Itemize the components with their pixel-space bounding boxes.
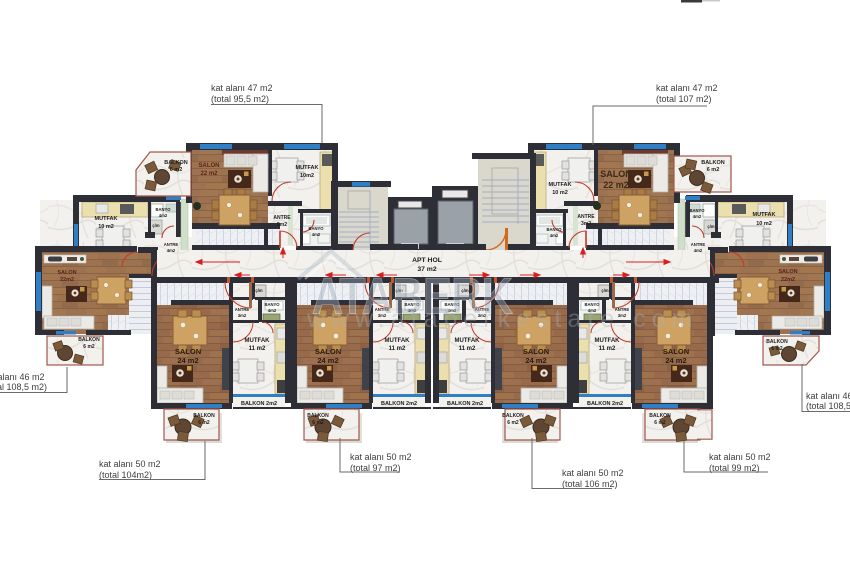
- svg-text:11 m2: 11 m2: [389, 346, 406, 352]
- svg-text:SALON: SALON: [523, 347, 549, 356]
- svg-text:kat alanı 50 m2: kat alanı 50 m2: [350, 452, 412, 462]
- svg-text:MUTFAK: MUTFAK: [296, 165, 319, 171]
- svg-text:(total 104m2): (total 104m2): [99, 470, 152, 480]
- svg-text:ANTRE: ANTRE: [691, 242, 706, 247]
- svg-text:BALKON 2m2: BALKON 2m2: [447, 401, 483, 407]
- svg-text:6 m2: 6 m2: [83, 344, 95, 350]
- svg-text:6 m2: 6 m2: [507, 420, 519, 426]
- svg-text:22m2: 22m2: [60, 277, 74, 283]
- svg-text:6 m2: 6 m2: [198, 420, 210, 426]
- svg-text:10 m2: 10 m2: [756, 221, 772, 227]
- svg-text:3m2: 3m2: [238, 313, 247, 318]
- svg-text:MUTFAK: MUTFAK: [385, 338, 411, 344]
- svg-text:4m2: 4m2: [268, 308, 277, 313]
- svg-text:10m2: 10m2: [300, 173, 314, 179]
- svg-text:4m2: 4m2: [694, 248, 703, 253]
- svg-text:MUTFAK: MUTFAK: [95, 216, 118, 222]
- svg-text:11 m2: 11 m2: [459, 346, 476, 352]
- svg-text:22m2: 22m2: [781, 277, 795, 283]
- svg-text:MUTFAK: MUTFAK: [595, 338, 621, 344]
- svg-text:4m2: 4m2: [312, 232, 321, 237]
- svg-text:kat alanı 46m2: kat alanı 46m2: [806, 391, 850, 401]
- svg-text:www.ataberkestate.com: www.ataberkestate.com: [306, 305, 698, 333]
- svg-text:6 m2: 6 m2: [654, 420, 666, 426]
- svg-text:ç/m: ç/m: [601, 288, 608, 293]
- svg-text:ANTRE: ANTRE: [164, 242, 179, 247]
- svg-text:SALON: SALON: [778, 269, 797, 275]
- svg-text:SALON: SALON: [600, 169, 632, 179]
- svg-text:4m2: 4m2: [693, 214, 702, 219]
- svg-text:(total 106 m2): (total 106 m2): [562, 479, 618, 489]
- svg-text:MUTFAK: MUTFAK: [245, 338, 271, 344]
- svg-text:ANTRE: ANTRE: [577, 214, 595, 220]
- svg-text:BALKON: BALKON: [502, 413, 524, 419]
- svg-text:ç/m: ç/m: [707, 224, 714, 229]
- svg-text:kat alanı 47 m2: kat alanı 47 m2: [656, 83, 718, 93]
- svg-text:APT HOL: APT HOL: [412, 257, 442, 264]
- svg-text:4m2: 4m2: [167, 248, 176, 253]
- svg-text:BANYO: BANYO: [264, 302, 280, 307]
- svg-text:kat alanı 50 m2: kat alanı 50 m2: [709, 452, 771, 462]
- svg-text:5m2: 5m2: [277, 222, 287, 228]
- svg-text:22 m2: 22 m2: [603, 180, 629, 190]
- svg-text:BALKON 2m2: BALKON 2m2: [587, 401, 623, 407]
- svg-text:SALON: SALON: [663, 347, 689, 356]
- svg-text:24 m2: 24 m2: [317, 356, 338, 365]
- svg-text:ANTRE: ANTRE: [235, 307, 250, 312]
- svg-text:BALKON: BALKON: [193, 413, 215, 419]
- svg-text:BANYO: BANYO: [308, 226, 324, 231]
- svg-text:(total 108,5 m2): (total 108,5 m2): [0, 382, 47, 392]
- svg-text:24 m2: 24 m2: [525, 356, 546, 365]
- svg-text:BALKON 2m2: BALKON 2m2: [241, 401, 277, 407]
- svg-text:11 m2: 11 m2: [249, 346, 266, 352]
- svg-text:BANYO: BANYO: [689, 208, 705, 213]
- svg-text:(total 107 m2): (total 107 m2): [656, 94, 712, 104]
- svg-text:4m2: 4m2: [159, 213, 168, 218]
- svg-text:SALON: SALON: [199, 163, 220, 169]
- svg-text:6 m2: 6 m2: [771, 346, 783, 352]
- svg-text:10 m2: 10 m2: [98, 224, 114, 230]
- svg-text:kat alanı 47 m2: kat alanı 47 m2: [211, 83, 273, 93]
- svg-text:BALKON: BALKON: [78, 337, 100, 343]
- svg-text:kat alanı 50 m2: kat alanı 50 m2: [562, 468, 624, 478]
- svg-text:ç/m: ç/m: [255, 288, 262, 293]
- svg-text:MUTFAK: MUTFAK: [753, 212, 776, 218]
- svg-text:MUTFAK: MUTFAK: [549, 182, 572, 188]
- svg-text:ANTRE: ANTRE: [273, 215, 291, 221]
- svg-text:BALKON: BALKON: [307, 413, 329, 419]
- svg-text:24 m2: 24 m2: [665, 356, 686, 365]
- svg-text:kat alanı 50 m2: kat alanı 50 m2: [99, 459, 161, 469]
- svg-text:BALKON: BALKON: [766, 339, 788, 345]
- svg-text:SALON: SALON: [57, 270, 76, 276]
- svg-text:10 m2: 10 m2: [552, 190, 568, 196]
- svg-text:11 m2: 11 m2: [599, 346, 616, 352]
- svg-text:SALON: SALON: [175, 347, 201, 356]
- svg-text:BALKON 2m2: BALKON 2m2: [381, 401, 417, 407]
- svg-text:BALKON: BALKON: [701, 160, 725, 166]
- svg-text:BALKON: BALKON: [164, 160, 188, 166]
- svg-text:3m2: 3m2: [581, 221, 591, 227]
- svg-text:6 m2: 6 m2: [707, 167, 720, 173]
- svg-text:6 m2: 6 m2: [170, 167, 183, 173]
- svg-text:kat alanı 46 m2: kat alanı 46 m2: [0, 372, 45, 382]
- svg-text:ç/m: ç/m: [152, 223, 159, 228]
- svg-text:MUTFAK: MUTFAK: [455, 338, 481, 344]
- svg-text:6 m2: 6 m2: [312, 420, 324, 426]
- svg-text:BALKON: BALKON: [649, 413, 671, 419]
- svg-text:(total 108,5 m2): (total 108,5 m2): [806, 401, 850, 411]
- svg-text:SALON: SALON: [315, 347, 341, 356]
- svg-text:BANYO: BANYO: [546, 227, 562, 232]
- svg-text:BANYO: BANYO: [155, 207, 171, 212]
- svg-text:(total 95,5 m2): (total 95,5 m2): [211, 94, 269, 104]
- svg-text:24 m2: 24 m2: [177, 356, 198, 365]
- svg-text:22 m2: 22 m2: [200, 171, 218, 177]
- svg-text:4m2: 4m2: [550, 233, 559, 238]
